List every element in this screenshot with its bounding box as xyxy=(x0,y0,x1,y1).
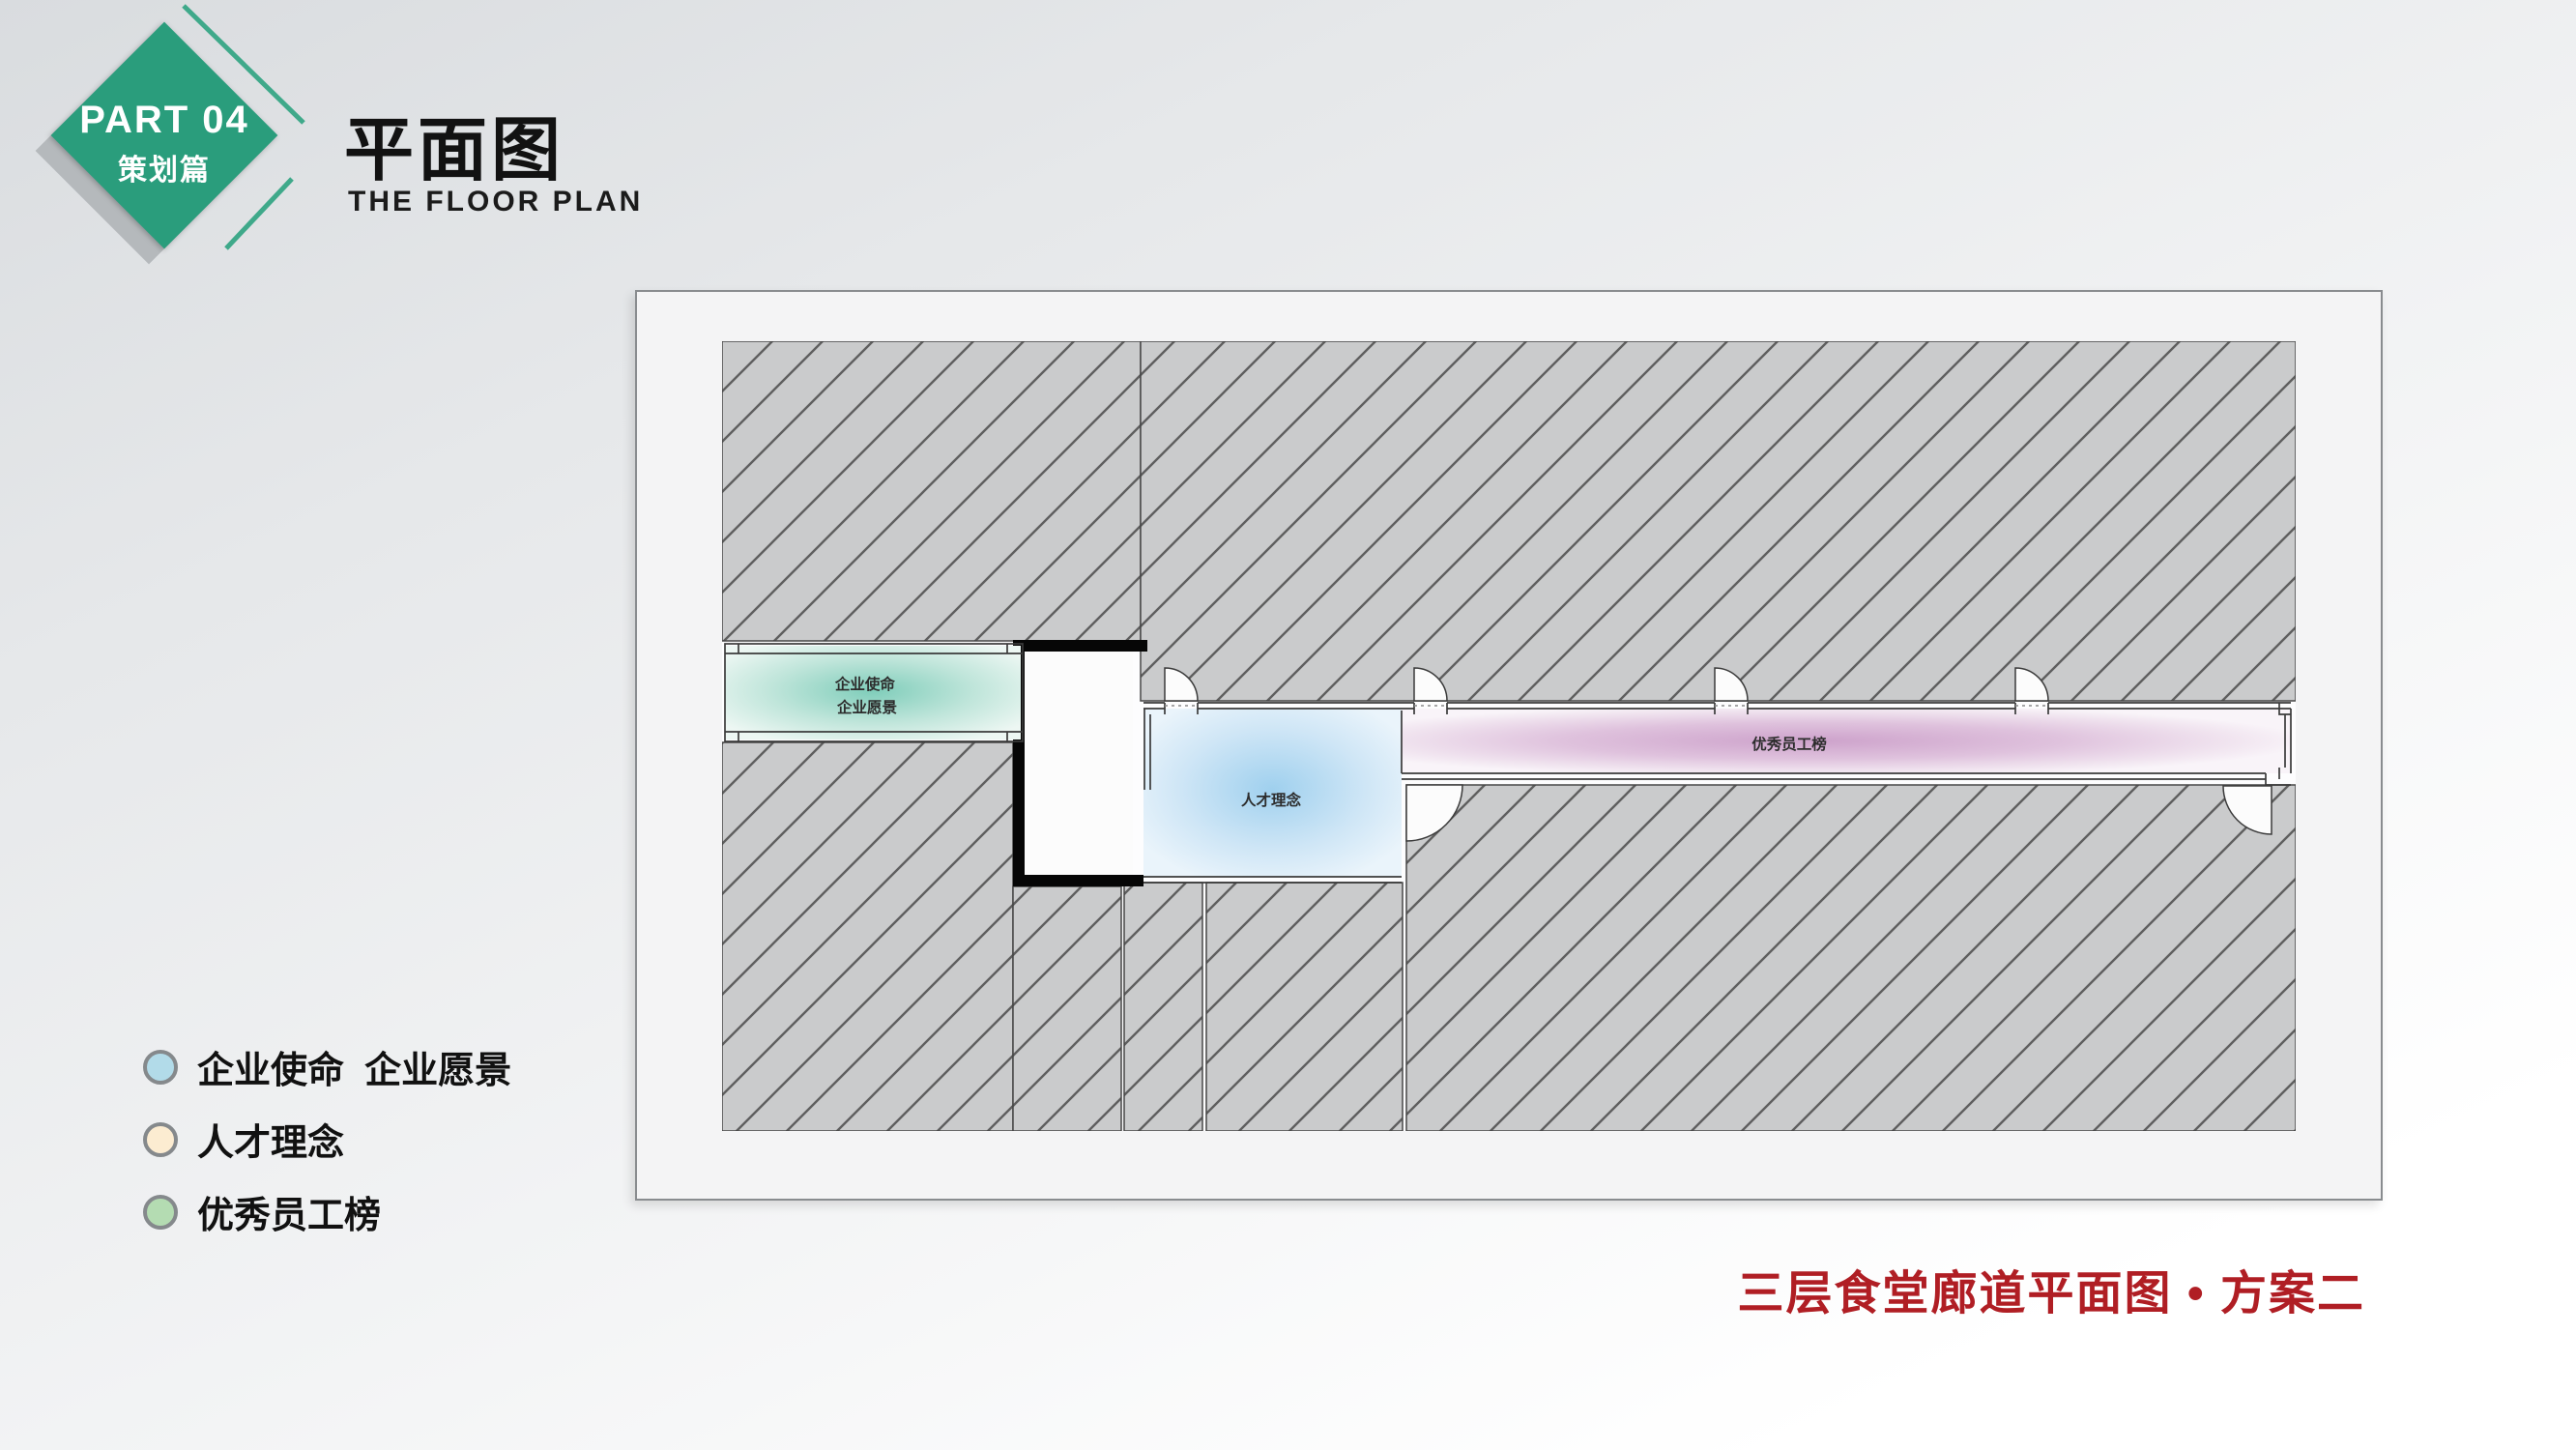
page-subtitle: THE FLOOR PLAN xyxy=(348,186,643,218)
caption: 三层食堂廊道平面图 • 方案二 xyxy=(1738,1255,2365,1322)
shaft xyxy=(1013,640,1147,886)
talent-room-label: 人才理念 xyxy=(1241,791,1302,809)
legend-item-label: 优秀员工榜 xyxy=(197,1185,381,1238)
hatch-block-top-left xyxy=(722,341,1141,641)
legend-swatch-icon xyxy=(143,1050,178,1085)
hatch-block-bottom-left xyxy=(722,742,1013,1131)
hatch-block-bottom-right xyxy=(1406,785,2296,1131)
shaft-interior xyxy=(1025,652,1133,875)
badge-section-label: 策划篇 xyxy=(39,146,290,188)
legend-item-mission-vision: 企业使命 企业愿景 xyxy=(143,1040,511,1093)
staff-corridor-fill xyxy=(1402,709,2291,773)
legend-swatch-icon xyxy=(143,1195,178,1230)
floor-plan-drawing: 企业使命 企业愿景 人才理念 优秀员工榜 xyxy=(722,341,2296,1131)
hatch-block-bottom-mid-2 xyxy=(1206,883,1403,1131)
legend-item-staff-board: 优秀员工榜 xyxy=(143,1185,511,1238)
badge-text: PART 04 策划篇 xyxy=(39,100,290,188)
staff-corridor-label: 优秀员工榜 xyxy=(1751,735,1827,753)
legend-item-talent: 人才理念 xyxy=(143,1113,511,1166)
page-title: 平面图 xyxy=(344,93,564,194)
hatch-block-below-shaft xyxy=(1013,886,1121,1131)
badge-part-label: PART 04 xyxy=(39,100,290,140)
legend-item-label: 人才理念 xyxy=(197,1113,344,1166)
legend: 企业使命 企业愿景 人才理念 优秀员工榜 xyxy=(143,1040,511,1238)
floor-plan-panel: 企业使命 企业愿景 人才理念 优秀员工榜 xyxy=(635,290,2383,1201)
legend-swatch-icon xyxy=(143,1122,178,1157)
hatch-block-bottom-mid-1 xyxy=(1124,883,1202,1131)
hatch-block-top-right xyxy=(1141,341,2296,701)
slide: PART 04 策划篇 平面图 THE FLOOR PLAN xyxy=(0,0,2576,1450)
legend-item-label: 企业使命 企业愿景 xyxy=(197,1040,511,1093)
